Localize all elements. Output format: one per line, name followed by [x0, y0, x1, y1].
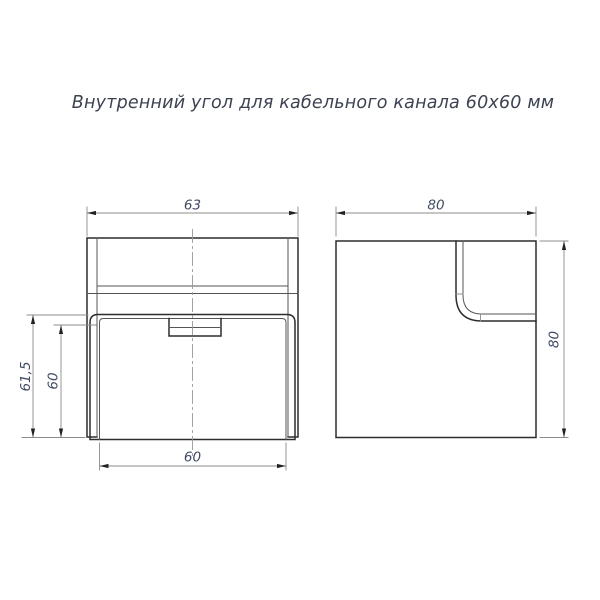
front-dim-bottom-width-label: 60	[184, 450, 201, 466]
side-notch-inner	[463, 241, 536, 314]
side-body-outline	[336, 241, 536, 438]
side-notch-seams	[456, 294, 481, 321]
arrow-right-icon	[289, 211, 298, 215]
arrow-left-icon	[336, 211, 345, 215]
front-dim-outer-height-label: 61,5	[18, 361, 34, 391]
front-view: 63 61,5 60 60	[18, 198, 298, 471]
arrow-up-icon	[562, 241, 566, 250]
front-dim-inner-height-label: 60	[46, 372, 62, 389]
front-dim-top-width-label: 63	[184, 198, 201, 214]
front-dim-inner-height: 60	[46, 325, 97, 438]
drawing-sheet: Внутренний угол для кабельного канала 60…	[0, 0, 600, 600]
side-dim-height: 80	[540, 241, 568, 438]
arrow-up-icon	[31, 315, 35, 324]
arrow-down-icon	[31, 429, 35, 438]
side-dim-width: 80	[336, 198, 536, 237]
side-view: 80 80	[336, 198, 568, 438]
arrow-right-icon	[527, 211, 536, 215]
side-dim-width-label: 80	[427, 198, 444, 214]
arrow-down-icon	[59, 429, 63, 438]
arrow-right-icon	[277, 464, 286, 468]
technical-drawing-canvas: 63 61,5 60 60	[0, 0, 600, 600]
arrow-down-icon	[562, 429, 566, 438]
arrow-up-icon	[59, 325, 63, 334]
arrow-left-icon	[87, 211, 96, 215]
side-dim-height-label: 80	[547, 331, 563, 348]
arrow-left-icon	[100, 464, 109, 468]
